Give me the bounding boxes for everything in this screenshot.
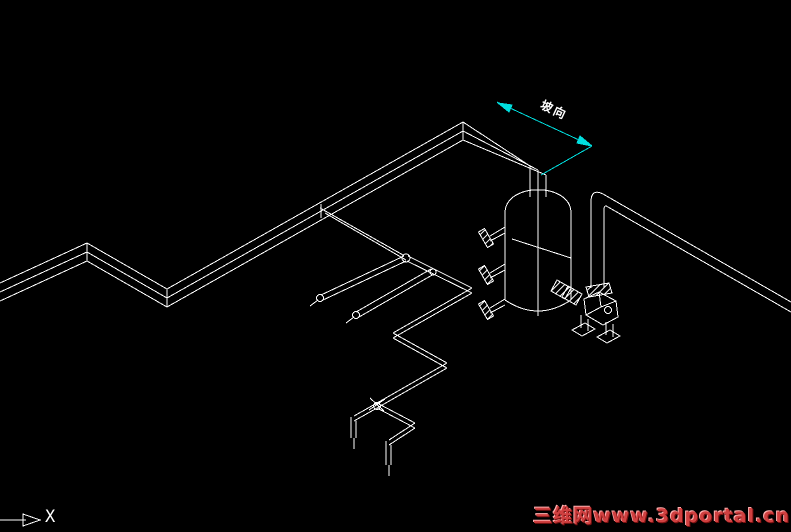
riser-pipe-outline bbox=[591, 192, 791, 302]
cad-viewport[interactable]: 坡向 X 三维网www.3dportal.cn bbox=[0, 0, 791, 532]
dimension-arrow bbox=[498, 103, 512, 112]
watermark-text: 三维网www.3dportal.cn bbox=[533, 501, 790, 528]
pump-casing-detail bbox=[605, 307, 612, 314]
cad-drawing bbox=[0, 0, 791, 532]
branch-pipe-line bbox=[356, 269, 431, 312]
branch-pipe-line bbox=[393, 333, 447, 363]
branch-pipe-line bbox=[377, 408, 415, 428]
dimension-arrow bbox=[577, 136, 592, 146]
nozzle-flange bbox=[479, 229, 494, 248]
branch-pipe-line bbox=[325, 213, 406, 260]
pipe-centerline-tail bbox=[346, 317, 354, 323]
branch-pipe-line bbox=[359, 274, 434, 317]
dimension-extension-line bbox=[541, 146, 592, 175]
pump-casing bbox=[584, 292, 618, 325]
branch-pipe-line bbox=[321, 256, 404, 295]
pipe-centerline-tail bbox=[310, 300, 318, 306]
riser-pipe-outline bbox=[604, 206, 791, 312]
branch-pipe-line bbox=[393, 293, 472, 338]
branch-pipe-line bbox=[377, 363, 447, 403]
axis-x-label: X bbox=[45, 507, 55, 527]
branch-pipe-line bbox=[393, 338, 447, 368]
vessel-level-line bbox=[512, 239, 571, 258]
nozzle-flange bbox=[479, 301, 494, 320]
main-pipe-line bbox=[0, 131, 538, 298]
pump-foot-pad bbox=[572, 323, 595, 336]
branch-pipe-line bbox=[389, 423, 415, 440]
branch-pipe-line bbox=[320, 208, 403, 255]
pump-foot-pad bbox=[597, 330, 620, 343]
branch-pipe-line bbox=[323, 261, 406, 300]
main-pipe-line bbox=[0, 140, 546, 307]
nozzle-flange bbox=[479, 266, 494, 285]
branch-pipe-line bbox=[393, 288, 472, 333]
branch-pipe-line bbox=[389, 428, 415, 445]
pump-casing-detail bbox=[586, 307, 601, 315]
branch-pipe-line bbox=[377, 368, 447, 408]
branch-pipe-line bbox=[377, 403, 415, 423]
